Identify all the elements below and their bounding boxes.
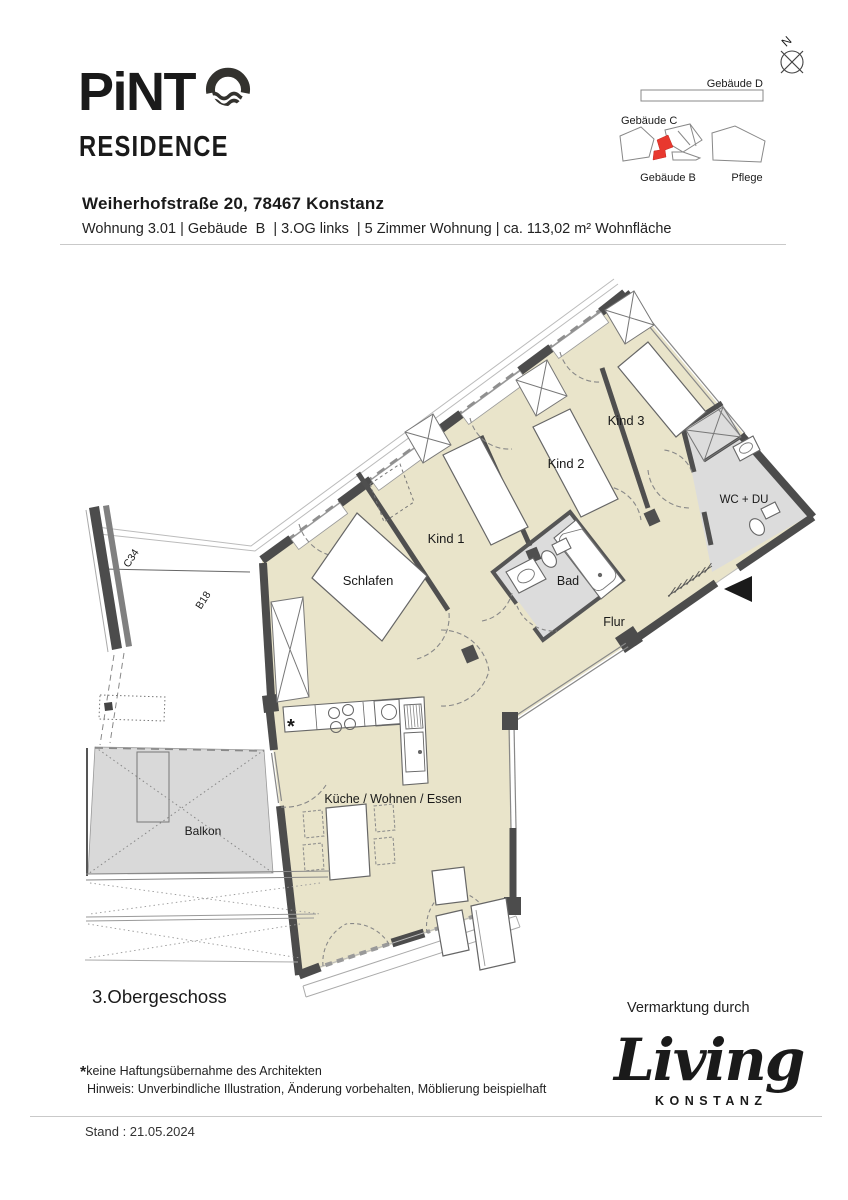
- room-label-kind3: Kind 3: [608, 413, 645, 428]
- footnote-line2: Hinweis: Unverbindliche Illustration, Än…: [87, 1081, 546, 1098]
- living-logo-city: KONSTANZ: [655, 1094, 768, 1108]
- revision-date: Stand : 21.05.2024: [85, 1124, 195, 1139]
- room-label-wc: WC + DU: [720, 494, 769, 506]
- unit-label-b18: B18: [193, 589, 213, 611]
- pinto-logo-text: PiNT: [78, 62, 197, 122]
- footer-divider: [30, 1116, 822, 1117]
- wardrobe-west: [271, 597, 309, 702]
- floor-label: 3.Obergeschoss: [92, 986, 227, 1007]
- room-label-kind1: Kind 1: [428, 531, 465, 546]
- balcony-floor: [88, 747, 273, 874]
- footnote: *keine Haftungsübernahme des Architekten…: [80, 1063, 546, 1098]
- marketing-label: Vermarktung durch: [627, 1000, 750, 1016]
- room-label-balkon: Balkon: [185, 824, 222, 838]
- pinto-wave-o-icon: [209, 72, 249, 111]
- room-label-schlafen: Schlafen: [343, 573, 394, 588]
- tall-cabinet: [399, 697, 428, 785]
- floor-plan: C34 B18: [0, 250, 848, 1025]
- site-map: N Gebäude D Gebäude C Gebäude B Pflege: [612, 30, 824, 195]
- living-konstanz-logo: Living KONSTANZ: [600, 1018, 825, 1113]
- compass-icon: [781, 51, 803, 73]
- site-map-label-gebaeude-c: Gebäude C: [621, 115, 677, 127]
- coffee-table: [432, 867, 468, 905]
- living-logo-text: Living: [612, 1026, 804, 1094]
- room-label-bad: Bad: [557, 574, 579, 588]
- footnote-line1: keine Haftungsübernahme des Architekten: [86, 1064, 322, 1078]
- pinto-logo: PiNT RESIDENCE: [78, 58, 288, 178]
- site-map-label-pflege: Pflege: [731, 172, 762, 184]
- header-divider: [60, 244, 786, 245]
- site-map-label-gebaeude-b: Gebäude B: [640, 172, 696, 184]
- room-label-kueche: Küche / Wohnen / Essen: [324, 792, 461, 806]
- site-map-label-gebaeude-d: Gebäude D: [707, 78, 763, 90]
- room-label-flur: Flur: [603, 615, 625, 629]
- expose-page: PiNT RESIDENCE N Gebäude D Gebäude C: [0, 0, 848, 1200]
- unit-label-c34: C34: [121, 547, 142, 570]
- dining-table: [326, 804, 370, 880]
- building-d-outline: [641, 90, 763, 101]
- building-pflege-outline: [712, 126, 765, 162]
- apartment-details: Wohnung 3.01 | Gebäude B | 3.OG links | …: [82, 221, 671, 237]
- pinto-residence-text: RESIDENCE: [79, 130, 229, 163]
- neighbour-unit-zone: C34 B18: [86, 505, 250, 745]
- wall-pier: [502, 712, 518, 730]
- kitchen-asterisk: *: [287, 716, 295, 738]
- compass-north-label: N: [779, 33, 795, 49]
- entrance-arrow-icon: [724, 576, 752, 602]
- room-label-kind2: Kind 2: [548, 456, 585, 471]
- page-title-address: Weiherhofstraße 20, 78467 Konstanz: [82, 194, 384, 214]
